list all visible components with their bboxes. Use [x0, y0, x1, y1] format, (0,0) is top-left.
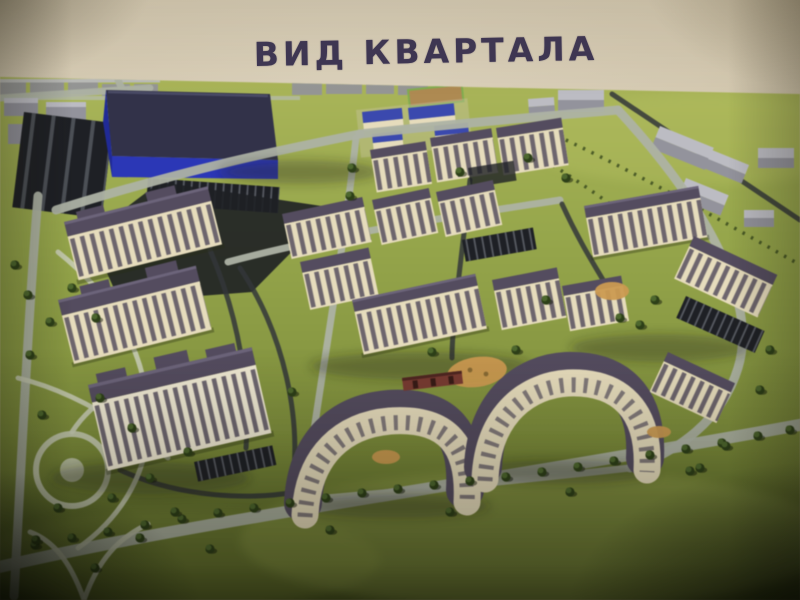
apartment-building	[370, 141, 432, 192]
striped-parking-lot	[12, 112, 113, 218]
photo-of-masterplan-poster: ВИД КВАРТАЛА	[0, 0, 800, 600]
masterplan-rendering	[0, 0, 800, 600]
